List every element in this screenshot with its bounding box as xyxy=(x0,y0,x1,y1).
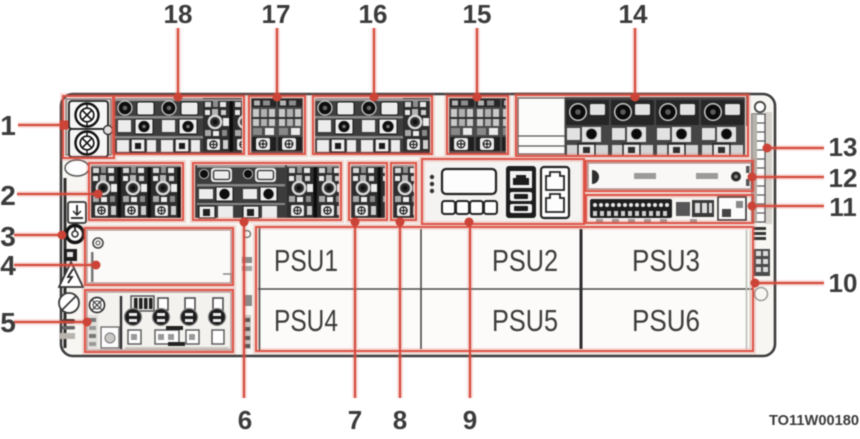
svg-text:7: 7 xyxy=(348,405,362,435)
svg-text:11: 11 xyxy=(829,192,857,222)
svg-text:14: 14 xyxy=(619,0,648,29)
svg-text:9: 9 xyxy=(463,405,477,435)
svg-text:TO11W00180: TO11W00180 xyxy=(769,412,859,429)
svg-text:4: 4 xyxy=(0,250,16,281)
svg-text:2: 2 xyxy=(0,180,16,211)
svg-text:PSU6: PSU6 xyxy=(632,303,700,338)
svg-text:17: 17 xyxy=(262,0,291,29)
svg-text:10: 10 xyxy=(829,268,858,298)
svg-text:12: 12 xyxy=(829,163,858,193)
svg-text:6: 6 xyxy=(238,405,252,435)
svg-text:3: 3 xyxy=(0,221,16,252)
svg-text:1: 1 xyxy=(0,110,16,141)
svg-text:15: 15 xyxy=(463,0,492,29)
svg-text:5: 5 xyxy=(0,307,16,338)
svg-text:13: 13 xyxy=(829,132,858,162)
svg-text:PSU5: PSU5 xyxy=(492,303,558,338)
svg-text:16: 16 xyxy=(359,0,388,29)
svg-text:PSU4: PSU4 xyxy=(274,303,338,338)
svg-text:PSU2: PSU2 xyxy=(492,243,558,278)
svg-text:PSU1: PSU1 xyxy=(274,243,338,278)
svg-text:8: 8 xyxy=(393,405,407,435)
svg-text:PSU3: PSU3 xyxy=(632,243,700,278)
svg-text:18: 18 xyxy=(164,0,193,29)
